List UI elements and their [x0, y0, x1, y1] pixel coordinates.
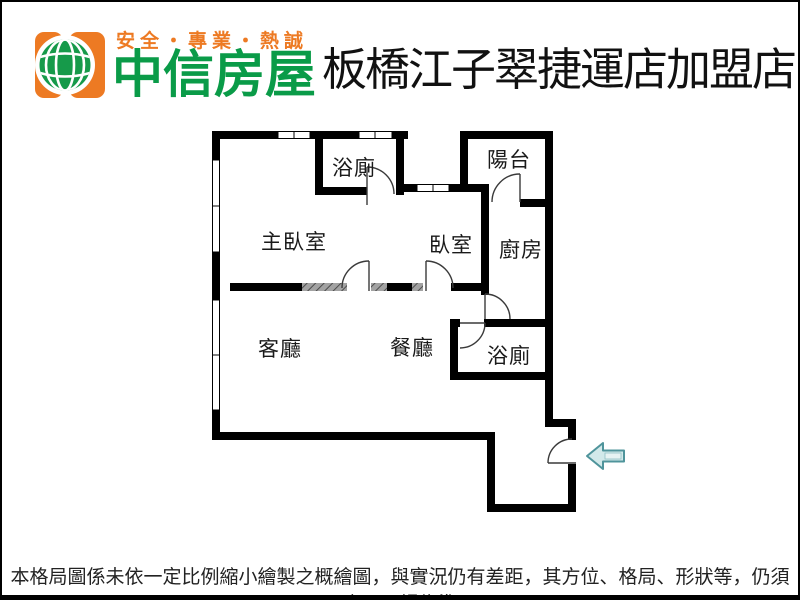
windows: [212, 131, 449, 410]
room-label-bath-bottom: 浴廁: [487, 345, 531, 368]
room-label-balcony: 陽台: [487, 149, 531, 172]
door-swings: [342, 167, 576, 463]
room-label-master: 主臥室: [261, 231, 327, 254]
floorplan-flyer: 安全・專業・熱誠 中信房屋 板橋江子翠捷運店加盟店: [0, 0, 800, 600]
room-label-kitchen: 廚房: [499, 239, 543, 262]
entrance-arrow-left-icon: [587, 443, 624, 469]
room-label-bedroom: 臥室: [429, 234, 473, 257]
room-label-living: 客廳: [258, 338, 302, 361]
floor-plan: 浴廁 陽台 主臥室 臥室 廚房 客廳 餐廳 浴廁: [2, 2, 798, 595]
room-label-bath-top: 浴廁: [332, 157, 376, 180]
room-label-dining: 餐廳: [390, 337, 434, 360]
disclaimer-text: 本格局圖係未依一定比例縮小繪製之概繪圖，與實況仍有差距，其方位、格局、形狀等，仍…: [2, 562, 798, 600]
